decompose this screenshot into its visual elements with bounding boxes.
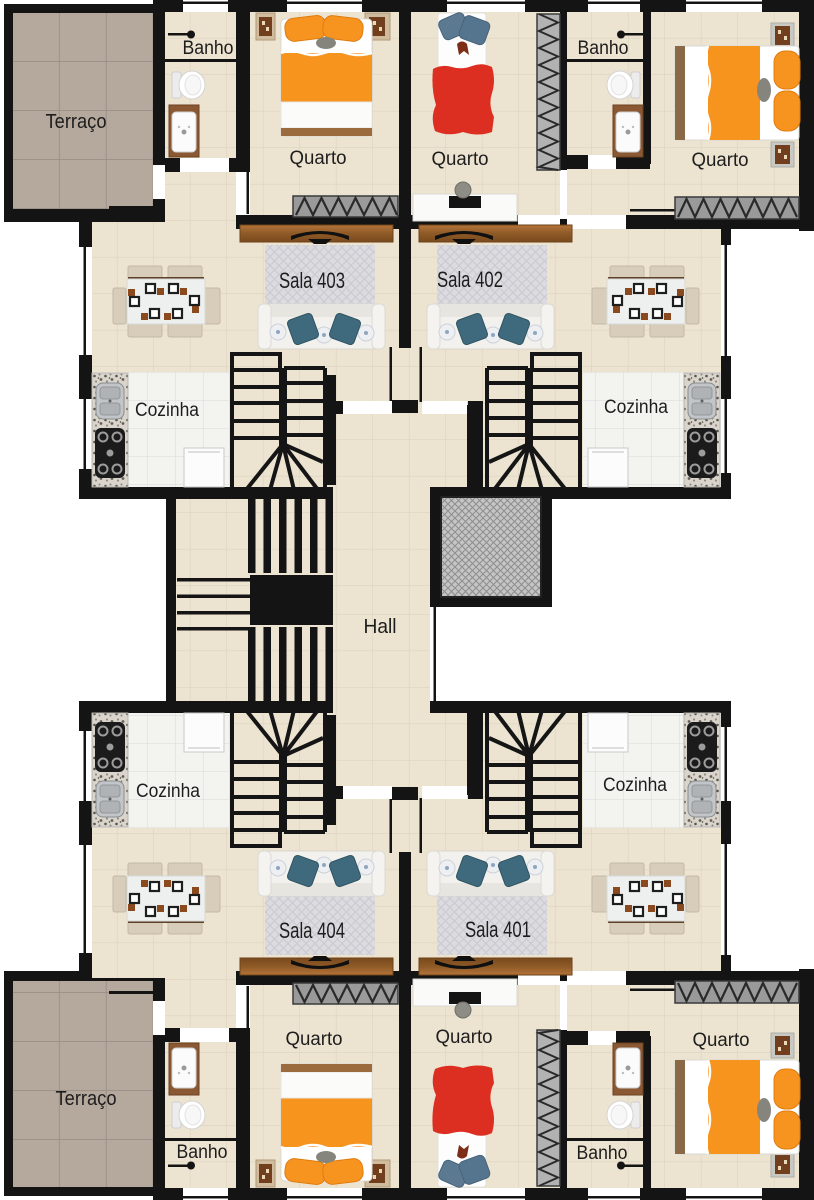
svg-text:Quarto: Quarto (693, 1030, 750, 1051)
svg-text:Sala 404: Sala 404 (279, 918, 345, 943)
svg-text:Sala 402: Sala 402 (437, 267, 503, 292)
svg-text:Quarto: Quarto (290, 148, 347, 169)
svg-text:Banho: Banho (183, 38, 234, 59)
svg-text:Cozinha: Cozinha (604, 397, 668, 418)
svg-text:Terraço: Terraço (46, 111, 107, 133)
svg-text:Quarto: Quarto (436, 1027, 493, 1048)
svg-text:Terraço: Terraço (56, 1088, 117, 1110)
svg-text:Sala 403: Sala 403 (279, 268, 345, 293)
svg-text:Banho: Banho (578, 38, 629, 59)
svg-text:Cozinha: Cozinha (135, 400, 199, 421)
svg-text:Sala 401: Sala 401 (465, 917, 531, 942)
svg-text:Banho: Banho (577, 1143, 628, 1164)
svg-text:Quarto: Quarto (286, 1029, 343, 1050)
svg-text:Quarto: Quarto (692, 150, 749, 171)
svg-text:Hall: Hall (364, 616, 397, 638)
svg-text:Cozinha: Cozinha (136, 781, 200, 802)
svg-text:Banho: Banho (177, 1142, 228, 1163)
svg-text:Cozinha: Cozinha (603, 775, 667, 796)
svg-text:Quarto: Quarto (432, 149, 489, 170)
